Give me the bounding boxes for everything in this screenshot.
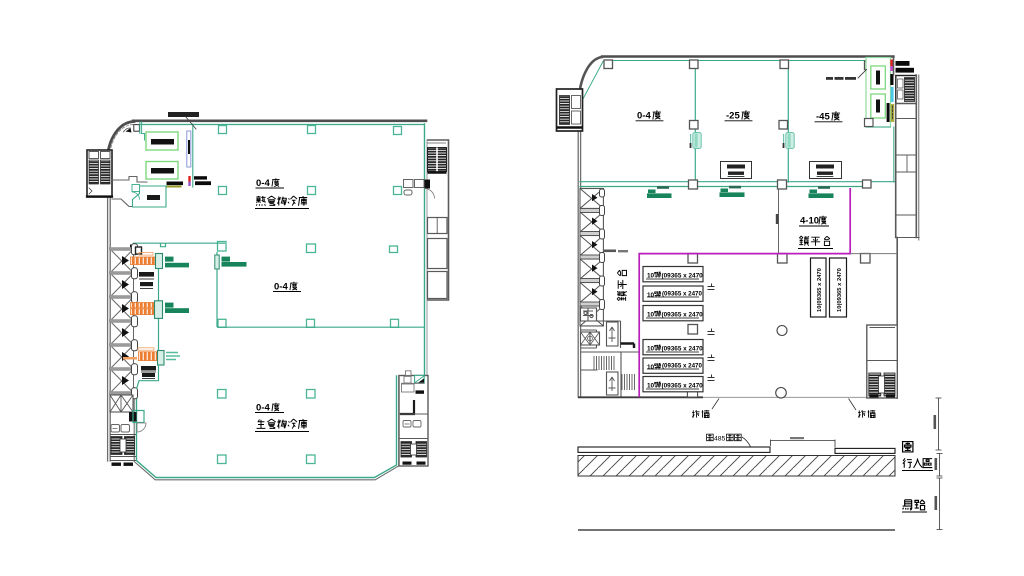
svg-text:10: 10 xyxy=(647,346,655,353)
svg-text:0-4: 0-4 xyxy=(256,178,270,189)
svg-text:10: 10 xyxy=(647,273,655,280)
svg-text:(09365 x 2470: (09365 x 2470 xyxy=(662,291,702,298)
svg-text:10: 10 xyxy=(647,383,655,390)
svg-text:10: 10 xyxy=(647,292,655,299)
svg-text:(09365 x 2470: (09365 x 2470 xyxy=(662,273,704,280)
svg-text:10(09365 x 2470: 10(09365 x 2470 xyxy=(837,268,843,312)
svg-text:4-10: 4-10 xyxy=(800,216,819,227)
svg-text:0-4: 0-4 xyxy=(637,111,651,122)
svg-text:0-4: 0-4 xyxy=(256,403,270,414)
svg-text:10: 10 xyxy=(647,312,655,319)
svg-text:-25: -25 xyxy=(726,111,740,122)
svg-text:(09365 x 2470: (09365 x 2470 xyxy=(662,363,702,370)
svg-text:485: 485 xyxy=(714,436,726,443)
svg-text:(09365 x 2470: (09365 x 2470 xyxy=(662,312,704,319)
svg-text:0-4: 0-4 xyxy=(274,282,288,293)
svg-text:10(09365 x 2470: 10(09365 x 2470 xyxy=(817,268,823,312)
svg-text:(09365 x 2470: (09365 x 2470 xyxy=(662,383,704,390)
svg-text:-45: -45 xyxy=(816,112,830,123)
svg-text:(09365 x 2470: (09365 x 2470 xyxy=(662,346,704,353)
svg-text:10: 10 xyxy=(647,364,655,371)
